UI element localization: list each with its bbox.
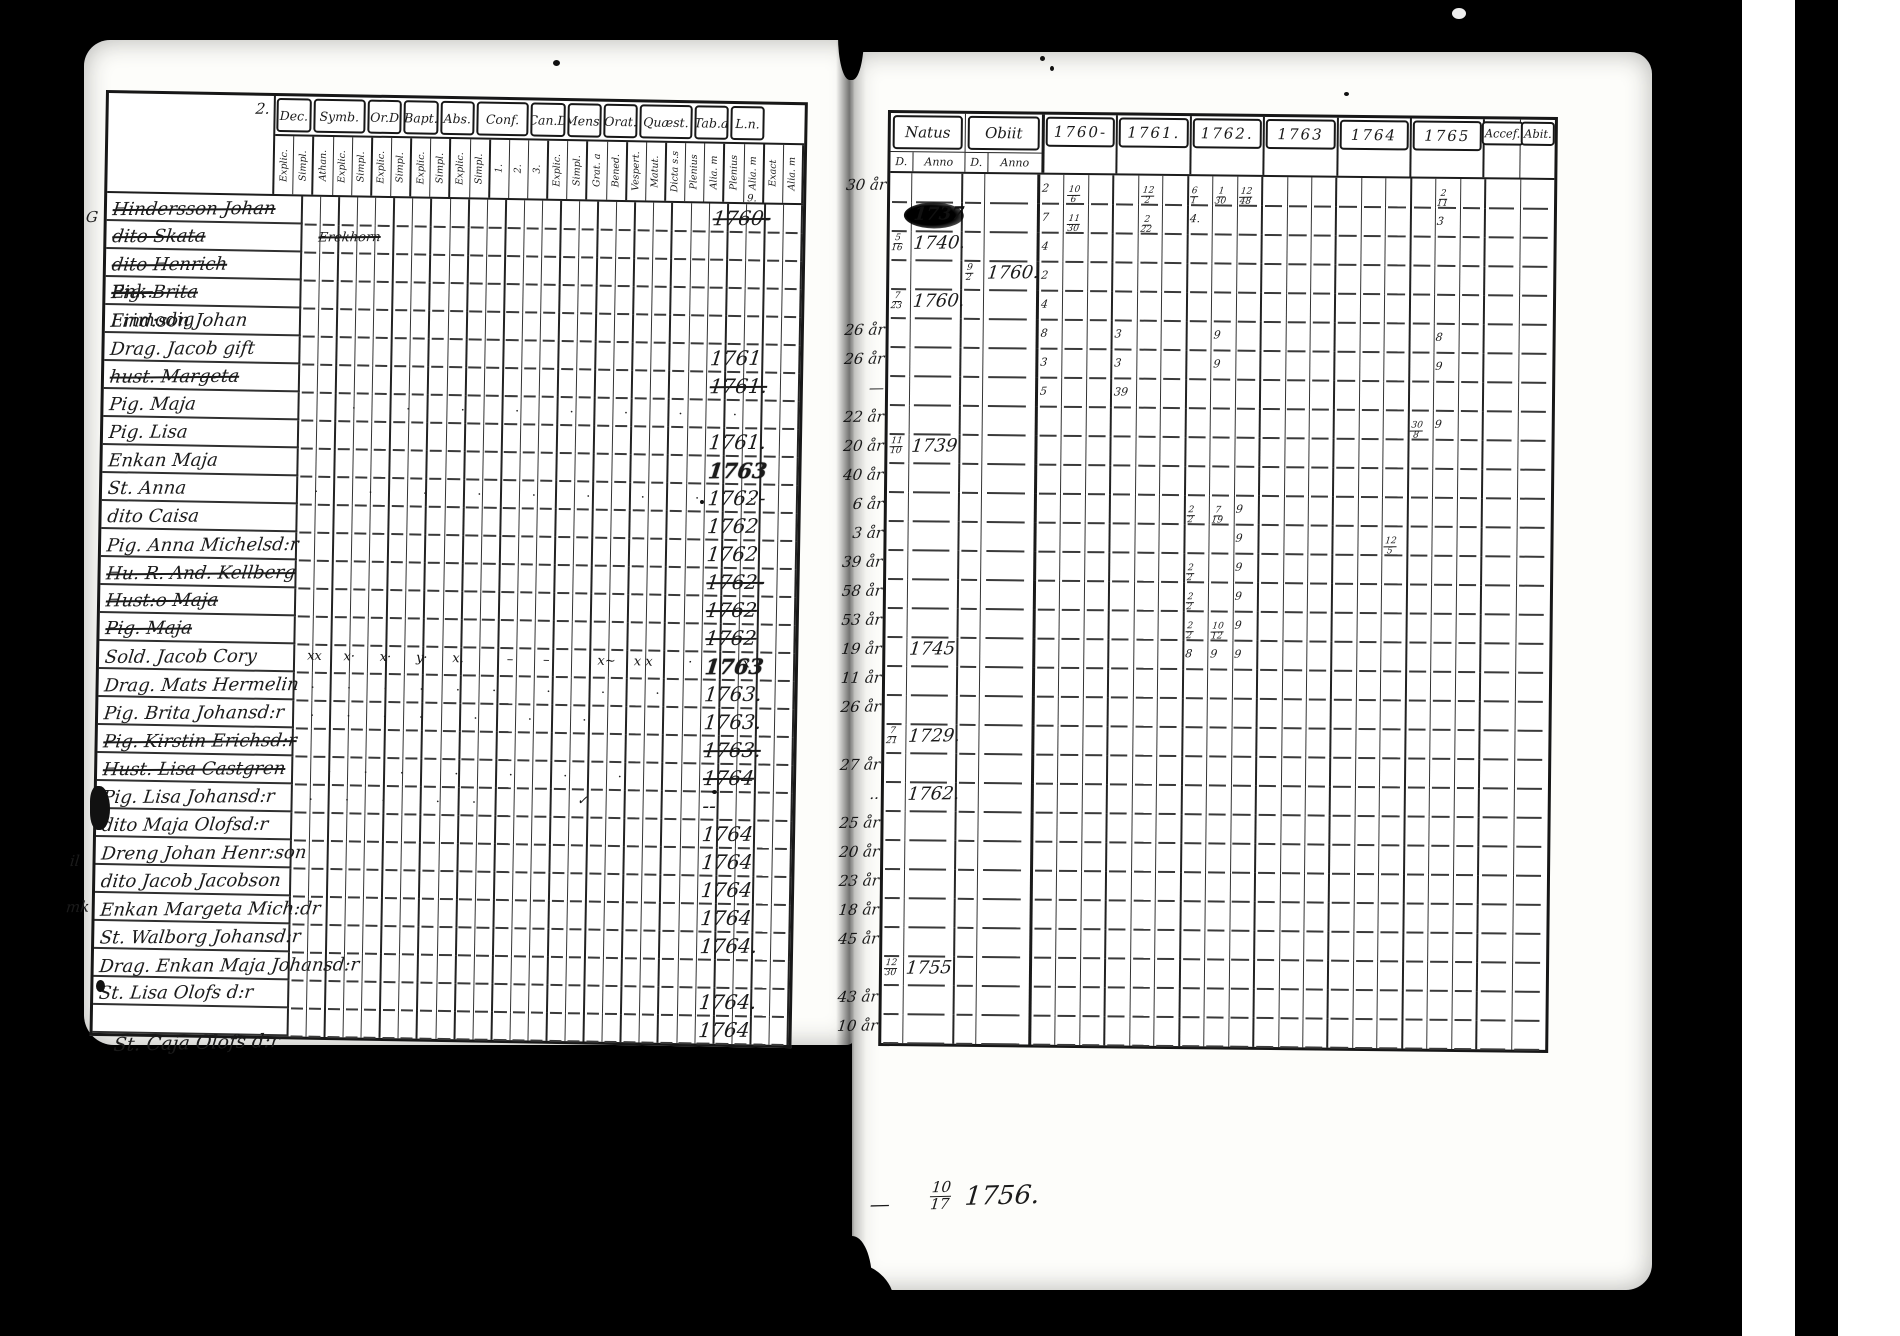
year-grid-cell xyxy=(1154,1017,1180,1046)
grid-cell xyxy=(690,287,709,315)
attendance-x-mark: ✓ xyxy=(577,793,588,808)
attendance-mark-text: 4 xyxy=(1040,298,1048,311)
year-grid-cell xyxy=(1259,583,1284,612)
year-grid-cell xyxy=(1158,669,1184,698)
grid-cell xyxy=(586,930,605,958)
grid-cell xyxy=(559,341,578,369)
acces-cell xyxy=(1483,469,1518,498)
grid-cell xyxy=(372,394,392,422)
grid-cell xyxy=(426,535,445,563)
grid-cell xyxy=(319,281,339,309)
attendance-mark-text: 9 xyxy=(1234,648,1242,661)
grid-cell xyxy=(432,199,451,227)
year-grid-cell xyxy=(1261,351,1286,380)
grid-cell xyxy=(651,371,671,399)
sub-column-header: Simpl. xyxy=(567,141,588,199)
obiit-anno-cell xyxy=(977,1015,1032,1045)
year-grid-cell xyxy=(1180,1017,1205,1046)
natus-day-cell xyxy=(883,811,905,840)
sub-column-label: Plenius xyxy=(729,155,739,190)
acces-cell xyxy=(1484,440,1519,469)
natus-anno-cell xyxy=(912,173,964,203)
grid-cell xyxy=(754,876,773,904)
sub-column-label: Simpl. xyxy=(357,151,367,182)
obiit-anno-cell xyxy=(978,899,1033,929)
abit-cell xyxy=(1517,528,1551,557)
grid-cell xyxy=(590,706,609,734)
obiit-label: Obiit xyxy=(968,116,1040,151)
grid-cell xyxy=(682,735,701,763)
grid-cell xyxy=(549,929,568,957)
grid-cell xyxy=(580,201,600,229)
grid-cell xyxy=(629,622,648,650)
abit-cell xyxy=(1515,702,1549,731)
attendance-date-mark: 1130 xyxy=(1066,206,1080,235)
year-grid-cell xyxy=(1138,263,1163,292)
grid-cell xyxy=(456,983,475,1011)
grid-cell xyxy=(518,564,537,592)
year-grid-cell xyxy=(1180,988,1205,1017)
grid-cell xyxy=(354,393,373,421)
name-entry: Pig. Kirstin Erichsd:r xyxy=(102,730,298,752)
year-grid-cell xyxy=(1334,555,1359,584)
year-grid-cell xyxy=(1132,843,1157,872)
grid-cell xyxy=(612,482,632,510)
obiit-anno-cell xyxy=(983,406,1038,436)
ln-year-entry: 1763 xyxy=(708,458,767,484)
ln-year-text: -- xyxy=(701,794,717,818)
acces-cell xyxy=(1482,556,1517,585)
grid-cell xyxy=(594,454,613,482)
year-grid-cell xyxy=(1455,730,1481,759)
attendance-dot: · xyxy=(383,711,387,724)
abit-cell xyxy=(1513,876,1547,905)
natus-day-cell xyxy=(885,608,907,637)
year-grid-cell xyxy=(1384,439,1410,468)
year-grid-cell xyxy=(1379,932,1405,961)
grid-cell xyxy=(570,733,590,761)
grid-cell xyxy=(290,924,309,952)
grid-cell xyxy=(403,786,423,814)
year-grid-cell xyxy=(1087,349,1113,378)
grid-cell xyxy=(775,681,795,709)
year-grid-cell xyxy=(1107,900,1132,929)
natus-day-entry: 516 xyxy=(890,234,904,254)
grid-cell xyxy=(536,593,556,621)
grid-cell xyxy=(634,286,653,314)
grid-cell xyxy=(596,342,615,370)
attendance-date-mark: 211 xyxy=(1437,181,1449,210)
name-column-header: 2. xyxy=(107,93,276,194)
year-grid-cell xyxy=(1113,262,1138,291)
scan-white-dot xyxy=(1452,8,1466,19)
name-entry: dito Maja Olofsd:r xyxy=(101,814,270,836)
grid-cell xyxy=(524,228,543,256)
ln-year-entry: 1762- xyxy=(706,570,764,595)
attendance-date-mark: 9 xyxy=(1236,498,1243,517)
scanner-strip-2 xyxy=(1838,0,1900,1336)
natus-year-text: 1740. xyxy=(912,232,966,254)
acces-cell xyxy=(1482,614,1517,643)
year-grid-cell xyxy=(1285,409,1310,438)
year-grid-cell xyxy=(1407,671,1432,700)
grid-cell xyxy=(634,314,653,342)
grid-cell xyxy=(649,483,669,511)
attendance-mark-text: 8 xyxy=(1040,327,1048,340)
grid-cell xyxy=(603,1014,623,1042)
year-grid-cell xyxy=(1356,700,1381,729)
year-grid-cell xyxy=(1284,496,1309,525)
attendance-date-mark: 4 xyxy=(1041,293,1048,312)
sub-column-label: Explic. xyxy=(455,152,465,185)
attendance-date-mark: 22 xyxy=(1185,613,1193,642)
year-grid-cell xyxy=(1263,206,1288,235)
year-grid-cell xyxy=(1357,613,1382,642)
grid-cell xyxy=(302,252,321,280)
grid-cell xyxy=(498,676,517,704)
year-grid-cell xyxy=(1209,524,1234,553)
obiit-day-cell xyxy=(957,783,979,812)
year-grid-cell xyxy=(1080,987,1106,1016)
sub-column-label: Simpl. xyxy=(298,150,308,181)
year-grid-cell xyxy=(1309,438,1335,467)
ink-speck xyxy=(553,60,560,66)
attendance-mark-text: 9 xyxy=(1235,590,1243,603)
obiit-anno-cell xyxy=(985,232,1040,262)
year-grid-cell xyxy=(1188,234,1213,263)
year-grid-cell xyxy=(1410,352,1435,381)
grid-cell xyxy=(410,394,430,422)
grid-cell xyxy=(560,285,579,313)
fraction-denominator: 30 xyxy=(884,969,897,979)
year-grid-cell xyxy=(1088,291,1114,320)
year-grid-cell xyxy=(1412,207,1437,236)
year-grid-cell xyxy=(1308,554,1334,583)
year-grid-cell xyxy=(1235,438,1261,467)
year-grid-cell xyxy=(1157,727,1183,756)
age-text: — xyxy=(868,379,885,397)
natus-day-cell xyxy=(882,985,904,1014)
year-grid-cell xyxy=(1112,436,1137,465)
grid-cell xyxy=(726,316,745,344)
grid-cell xyxy=(609,678,629,706)
year-grid-cell xyxy=(1386,207,1412,236)
grid-cell xyxy=(685,567,704,595)
natus-anno-cell xyxy=(908,521,960,551)
year-grid-cell xyxy=(1135,524,1160,553)
sub-column-header: Plenius xyxy=(685,143,705,201)
year-grid-cell xyxy=(1061,465,1086,494)
grid-cell xyxy=(334,533,353,561)
attendance-dot: · xyxy=(383,683,387,696)
year-grid-cell xyxy=(1133,727,1158,756)
year-grid-cell xyxy=(1456,643,1482,672)
name-cell: dito Maja Olofsd:r xyxy=(96,809,292,840)
attendance-date-fraction: 61 xyxy=(1189,187,1199,207)
grid-cell xyxy=(684,623,703,651)
attendance-date-mark: 222 xyxy=(1140,207,1152,236)
grid-cell xyxy=(431,283,450,311)
name-entry: dito Jacob Jacobson xyxy=(100,870,282,892)
year-grid-cell xyxy=(1428,962,1453,991)
grid-cell xyxy=(591,622,610,650)
name-entry: Enkan Margeta Mich:dr xyxy=(99,898,321,920)
natus-day-cell xyxy=(884,782,906,811)
grid-cell xyxy=(386,730,405,758)
fraction-denominator: 1 xyxy=(1190,198,1197,208)
year-grid-cell xyxy=(1255,960,1280,989)
grid-cell xyxy=(460,759,479,787)
name-entry: St. Anna xyxy=(107,478,188,499)
acces-cell xyxy=(1485,324,1520,353)
name-entry: Hindersson Johan xyxy=(111,198,276,220)
grid-cell xyxy=(586,958,605,986)
year-grid-cell xyxy=(1256,815,1281,844)
year-grid-cell xyxy=(1235,380,1261,409)
grid-cell xyxy=(685,539,704,567)
year-grid-cell xyxy=(1284,554,1309,583)
sub-column-label: 1. xyxy=(495,164,505,173)
natus-anno-label: Anno xyxy=(913,152,964,172)
attendance-date-fraction: 211 xyxy=(1436,190,1450,210)
grid-cell xyxy=(649,511,669,539)
fraction-denominator: 2 xyxy=(1144,197,1151,207)
year-grid-cell xyxy=(1156,872,1182,901)
obiit-anno-cell xyxy=(985,174,1040,204)
year-grid-cell xyxy=(1081,929,1107,958)
year-grid-cell xyxy=(1163,176,1189,205)
grid-cell xyxy=(441,731,461,759)
year-grid-cell xyxy=(1409,439,1434,468)
grid-cell xyxy=(462,619,481,647)
sub-column-label: Exact xyxy=(768,160,778,187)
grid-cell xyxy=(667,567,686,595)
grid-cell xyxy=(572,621,592,649)
fraction-denominator: 48 xyxy=(1239,198,1252,208)
grid-cell xyxy=(630,566,649,594)
ln-year-text: 1762 xyxy=(704,626,758,650)
grid-cell xyxy=(567,929,587,957)
ln-year-text: 1762- xyxy=(706,486,767,510)
natus-day-cell xyxy=(885,637,907,666)
year-grid-cell xyxy=(1282,670,1307,699)
ink-speck xyxy=(700,500,704,504)
year-column-header: 1764 xyxy=(1338,118,1412,177)
name-entry: hust. Margeta xyxy=(109,366,241,388)
fraction-denominator: 8 xyxy=(1412,432,1419,442)
attendance-mark-text: 8 xyxy=(1185,647,1193,660)
natus-anno-cell xyxy=(911,260,963,290)
grid-cell xyxy=(578,313,598,341)
year-grid-cell xyxy=(1160,437,1186,466)
year-grid-cell xyxy=(1084,668,1110,697)
name-entry: Dreng Johan Henr:son xyxy=(100,842,308,864)
grid-cell xyxy=(505,256,524,284)
attendance-date-fraction: 222 xyxy=(1139,216,1153,236)
grid-cell xyxy=(315,505,335,533)
grid-cell xyxy=(598,258,617,286)
year-grid-cell xyxy=(1283,583,1308,612)
grid-cell xyxy=(782,289,802,317)
obiit-anno-cell xyxy=(978,841,1033,871)
grid-cell xyxy=(421,815,440,843)
grid-cell xyxy=(420,899,439,927)
abit-cell xyxy=(1519,325,1553,354)
natus-day-entry: 723 xyxy=(890,292,904,312)
natus-day-cell xyxy=(882,927,904,956)
grid-cell xyxy=(593,538,612,566)
year-grid-cell xyxy=(1229,960,1255,989)
grid-cell xyxy=(625,846,644,874)
grid-cell xyxy=(518,592,537,620)
year-grid-cell xyxy=(1106,987,1131,1016)
year-grid-cell xyxy=(1436,237,1461,266)
grid-cell xyxy=(494,900,513,928)
attendance-mark-text: 9 xyxy=(1234,619,1242,632)
grid-cell xyxy=(389,534,408,562)
grid-cell xyxy=(486,256,506,284)
year-grid-cell xyxy=(1162,321,1188,350)
year-grid-cell xyxy=(1310,322,1336,351)
grid-cell xyxy=(481,592,501,620)
acces-cell xyxy=(1485,295,1520,324)
grid-cell xyxy=(535,621,555,649)
attendance-dot: · xyxy=(678,408,682,421)
grid-cell xyxy=(678,931,697,959)
attendance-date-fraction: 130 xyxy=(1214,187,1228,207)
grid-cell xyxy=(520,452,539,480)
sub-column-label: Grat. a xyxy=(592,154,602,187)
attendance-date-fraction: 308 xyxy=(1409,421,1425,441)
fraction-denominator: 2 xyxy=(965,274,972,284)
obiit-anno-cell xyxy=(979,783,1034,813)
year-grid-cell xyxy=(1283,641,1308,670)
year-grid-cell xyxy=(1185,524,1210,553)
year-grid-cell xyxy=(1383,497,1409,526)
year-grid-cell xyxy=(1132,785,1157,814)
year-grid-cell xyxy=(1361,236,1386,265)
year-grid-cell xyxy=(1406,700,1431,729)
grid-cell xyxy=(771,933,791,961)
attendance-x-mark: x~ xyxy=(597,654,615,669)
natus-anno-cell xyxy=(910,405,962,435)
year-grid-cell xyxy=(1355,874,1380,903)
natus-year-text: 1745 xyxy=(908,638,956,660)
natus-day-cell xyxy=(889,318,911,347)
natus-day-cell xyxy=(887,492,909,521)
grid-cell xyxy=(295,616,314,644)
year-grid-cell xyxy=(1086,407,1112,436)
obiit-day-cell xyxy=(955,957,977,986)
natus-year-entry: 1737 xyxy=(914,203,964,225)
grid-cell xyxy=(627,706,646,734)
abit-cell xyxy=(1519,296,1553,325)
grid-cell xyxy=(504,368,523,396)
fraction-denominator: 16 xyxy=(890,244,903,254)
grid-cell xyxy=(559,369,578,397)
grid-cell xyxy=(663,763,682,791)
year-grid-cell xyxy=(1359,439,1384,468)
year-grid-cell xyxy=(1336,352,1361,381)
year-grid-cell xyxy=(1454,875,1480,904)
right-page: NatusD.AnnoObiitD.Anno1760-1761.1762.176… xyxy=(852,52,1652,1290)
grid-cell xyxy=(314,561,334,589)
natus-anno-cell xyxy=(908,550,960,580)
year-grid-cell xyxy=(1410,381,1435,410)
attendance-date-fraction: 22 xyxy=(1186,506,1196,526)
year-grid-cell xyxy=(1353,1019,1378,1048)
grid-cell xyxy=(431,255,450,283)
year-grid-cell xyxy=(1206,872,1231,901)
attendance-dot: · xyxy=(327,766,331,779)
grid-cell xyxy=(449,255,469,283)
grid-cell xyxy=(779,485,799,513)
grid-cell xyxy=(550,845,569,873)
year-grid-cell xyxy=(1384,381,1410,410)
attendance-dot: · xyxy=(406,403,410,416)
sub-column-header: Explic. xyxy=(333,137,353,195)
year-grid-cell xyxy=(1257,757,1282,786)
grid-cell xyxy=(420,871,439,899)
grid-cell xyxy=(374,282,394,310)
grid-cell xyxy=(467,339,486,367)
grid-cell xyxy=(589,762,608,790)
acces-cell xyxy=(1481,672,1516,701)
ln-year-entry: 1764 xyxy=(698,1017,749,1042)
obiit-day-cell xyxy=(958,696,980,725)
grid-cell xyxy=(754,848,773,876)
year-grid-cell xyxy=(1410,323,1435,352)
abit-cell xyxy=(1512,1021,1546,1050)
year-column-header: 1760- xyxy=(1044,115,1118,174)
grid-cell xyxy=(391,450,410,478)
year-label: 1763 xyxy=(1266,119,1336,150)
obiit-anno-cell xyxy=(980,725,1035,755)
name-entry: dito Skata xyxy=(111,226,207,248)
year-grid-cell xyxy=(1083,697,1109,726)
grid-cell xyxy=(578,285,598,313)
grid-cell xyxy=(662,847,681,875)
year-grid-cell xyxy=(1429,904,1454,933)
year-grid-cell xyxy=(1355,845,1380,874)
name-superscript: Enk. xyxy=(111,281,153,303)
grid-cell xyxy=(511,956,530,984)
grid-cell xyxy=(407,562,427,590)
year-grid-cell xyxy=(1404,961,1429,990)
grid-cell xyxy=(777,597,797,625)
year-grid-cell xyxy=(1082,871,1108,900)
bottom-date-note: 1017 1756. xyxy=(930,1180,1040,1213)
grid-cell xyxy=(647,595,667,623)
year-grid-cell xyxy=(1111,523,1136,552)
obiit-anno-cell xyxy=(982,522,1037,552)
natus-year-text: 1755 xyxy=(905,957,953,979)
sub-column-header: Exact xyxy=(764,145,784,203)
grid-cell xyxy=(409,422,429,450)
attendance-dot: · xyxy=(586,490,590,503)
grid-cell xyxy=(575,453,595,481)
grid-cell xyxy=(532,817,552,845)
attendance-mark-text: 9 xyxy=(1213,328,1221,341)
margin-note: mk xyxy=(65,898,90,917)
fraction-denominator: 6 xyxy=(1070,196,1077,206)
year-grid-cell xyxy=(1360,381,1385,410)
year-grid-cell xyxy=(1379,874,1405,903)
name-entry: Pig. Maja xyxy=(104,618,193,640)
year-grid-cell xyxy=(1407,642,1432,671)
obiit-anno-cell xyxy=(977,986,1032,1016)
year-grid-cell xyxy=(1237,264,1263,293)
